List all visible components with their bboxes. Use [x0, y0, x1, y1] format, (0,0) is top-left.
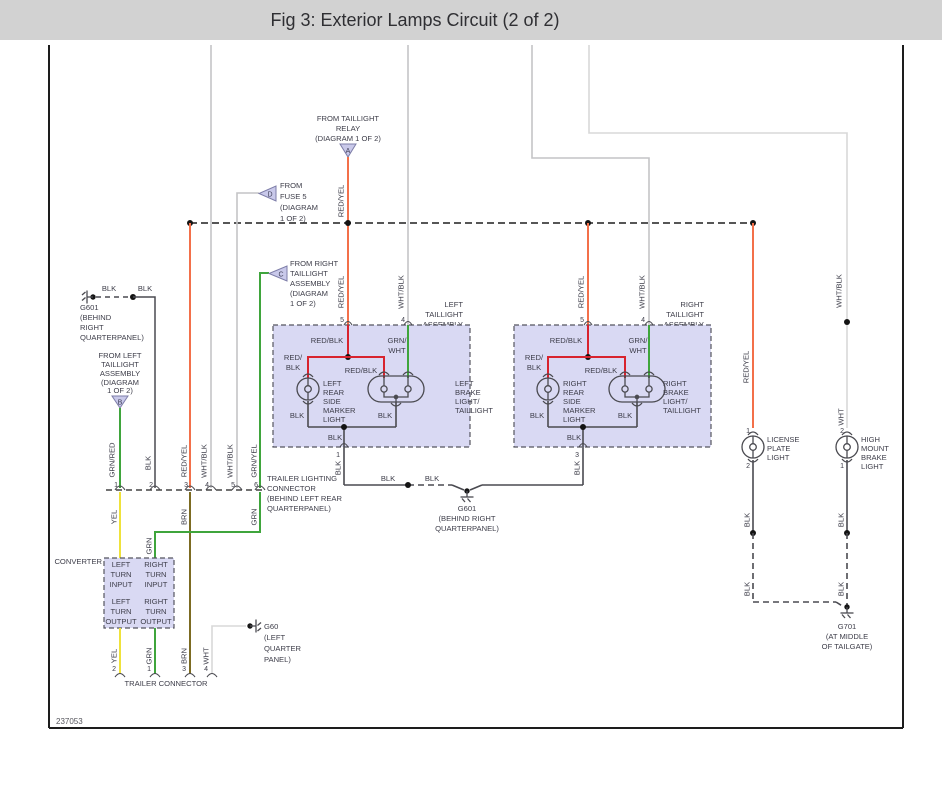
diagram-frame: 237053: [49, 45, 903, 728]
converter-name: CONVERTER: [54, 557, 102, 566]
svg-text:PLATE: PLATE: [767, 444, 791, 453]
ref-connector-a: FROM TAILLIGHT RELAY (DIAGRAM 1 OF 2) A: [315, 114, 381, 157]
svg-text:RED/: RED/: [525, 353, 544, 362]
svg-text:OUTPUT: OUTPUT: [105, 617, 137, 626]
svg-text:(DIAGRAM: (DIAGRAM: [280, 203, 318, 212]
svg-text:TURN: TURN: [145, 570, 166, 579]
svg-text:RED/BLK: RED/BLK: [345, 366, 378, 375]
svg-text:BLK: BLK: [334, 461, 343, 475]
svg-text:LEFT: LEFT: [112, 597, 131, 606]
svg-text:GRN: GRN: [145, 648, 154, 665]
wire-label: BLK: [102, 284, 116, 293]
svg-text:LEFT: LEFT: [112, 560, 131, 569]
svg-text:RELAY: RELAY: [336, 124, 360, 133]
svg-text:BRAKE: BRAKE: [663, 388, 689, 397]
wire-grn-yel: [260, 273, 269, 488]
svg-text:BLK: BLK: [290, 411, 304, 420]
svg-text:BLK: BLK: [530, 411, 544, 420]
svg-text:3: 3: [575, 452, 579, 459]
svg-text:FROM RIGHT: FROM RIGHT: [290, 259, 338, 268]
wire-label: RED/YEL: [337, 185, 346, 218]
svg-text:TAILLIGHT: TAILLIGHT: [455, 406, 493, 415]
wire-whtblk-to-right-assembly: [532, 45, 649, 325]
license-plate-light: RED/YEL 1 2 LICENSE PLATE LIGHT BLK BLK: [742, 351, 845, 607]
svg-text:5: 5: [340, 317, 344, 324]
svg-text:WHT/BLK: WHT/BLK: [200, 444, 209, 478]
svg-text:LIGHT: LIGHT: [861, 462, 884, 471]
svg-text:TURN: TURN: [110, 607, 131, 616]
svg-text:RIGHT: RIGHT: [563, 379, 587, 388]
svg-text:CONNECTOR: CONNECTOR: [267, 484, 316, 493]
svg-text:BLK: BLK: [527, 363, 541, 372]
svg-text:4: 4: [641, 317, 645, 324]
right-taillight-assembly: RED/YEL WHT/BLK RIGHT TAILLIGHT ASSEMBLY…: [514, 275, 711, 485]
svg-text:3: 3: [184, 482, 188, 489]
svg-text:BLK: BLK: [381, 474, 395, 483]
svg-text:BLK: BLK: [837, 582, 846, 596]
svg-text:TURN: TURN: [145, 607, 166, 616]
svg-text:LIGHT: LIGHT: [323, 415, 346, 424]
svg-text:BRAKE: BRAKE: [861, 453, 887, 462]
svg-text:GRN/: GRN/: [629, 336, 649, 345]
svg-text:WHT: WHT: [837, 408, 846, 426]
ground-run-g601: BLK BLK BLK BLK G601 (BEHIND RIGHT QUART…: [334, 461, 584, 533]
svg-text:BRN: BRN: [180, 648, 189, 664]
wire-label: BLK: [138, 284, 152, 293]
svg-text:OF TAILGATE): OF TAILGATE): [822, 642, 873, 651]
svg-text:INPUT: INPUT: [110, 580, 133, 589]
svg-text:1: 1: [336, 452, 340, 459]
ground-g701: G701 (AT MIDDLE OF TAILGATE): [822, 604, 873, 651]
svg-text:G60: G60: [264, 622, 278, 631]
svg-text:RED/BLK: RED/BLK: [550, 336, 583, 345]
svg-text:TAILLIGHT: TAILLIGHT: [425, 310, 463, 319]
svg-text:4: 4: [205, 482, 209, 489]
svg-text:2: 2: [112, 666, 116, 673]
high-mount-brake-light: WHT/BLK WHT 2 1 HIGH MOUNT BRAKE LIGHT B…: [835, 274, 890, 605]
svg-text:(DIAGRAM 1 OF 2): (DIAGRAM 1 OF 2): [315, 134, 381, 143]
svg-text:TAILLIGHT: TAILLIGHT: [666, 310, 704, 319]
svg-text:RIGHT: RIGHT: [663, 379, 687, 388]
svg-text:PANEL): PANEL): [264, 655, 291, 664]
svg-text:BLK: BLK: [837, 513, 846, 527]
svg-text:1 OF 2): 1 OF 2): [280, 214, 306, 223]
svg-text:LIGHT/: LIGHT/: [663, 397, 688, 406]
ground-icon: [461, 488, 474, 502]
svg-text:BLK: BLK: [618, 411, 632, 420]
converter-box: CONVERTER LEFT TURN INPUT RIGHT TURN INP…: [54, 557, 174, 628]
svg-text:GRN/RED: GRN/RED: [108, 442, 117, 478]
svg-text:TAILLIGHT: TAILLIGHT: [290, 269, 328, 278]
svg-text:B: B: [118, 400, 123, 407]
svg-text:1: 1: [840, 463, 844, 470]
svg-text:BLK: BLK: [743, 582, 752, 596]
svg-text:4: 4: [401, 317, 405, 324]
svg-text:MARKER: MARKER: [323, 406, 356, 415]
svg-text:RED/BLK: RED/BLK: [585, 366, 618, 375]
svg-text:BLK: BLK: [425, 474, 439, 483]
svg-text:BLK: BLK: [567, 433, 581, 442]
svg-text:G601: G601: [458, 504, 477, 513]
svg-text:HIGH: HIGH: [861, 435, 880, 444]
svg-text:WHT/BLK: WHT/BLK: [226, 444, 235, 478]
trailer-connector-bottom: YEL GRN BRN WHT 2 1 3 4 TRAILER CONNECTO…: [110, 626, 247, 688]
svg-text:MARKER: MARKER: [563, 406, 596, 415]
svg-text:WHT: WHT: [629, 346, 647, 355]
svg-text:WHT/BLK: WHT/BLK: [638, 275, 647, 309]
wire-from-fuse5: [237, 193, 259, 488]
svg-text:(BEHIND: (BEHIND: [80, 313, 112, 322]
svg-text:GRN/YEL: GRN/YEL: [250, 444, 259, 477]
svg-text:(LEFT: (LEFT: [264, 633, 285, 642]
svg-text:ASSEMBLY: ASSEMBLY: [290, 279, 330, 288]
trailer-lighting-connector: 1 2 3 4 5 6 GRN/RED BLK RED/YEL WHT/BLK …: [106, 442, 342, 513]
wire-grn: [155, 492, 260, 560]
svg-text:5: 5: [231, 482, 235, 489]
svg-text:SIDE: SIDE: [563, 397, 581, 406]
svg-text:D: D: [267, 192, 272, 199]
svg-text:YEL: YEL: [110, 510, 119, 524]
svg-text:BLK: BLK: [573, 461, 582, 475]
svg-text:(BEHIND LEFT REAR: (BEHIND LEFT REAR: [267, 494, 342, 503]
svg-text:TAILLIGHT: TAILLIGHT: [101, 360, 139, 369]
svg-text:2: 2: [149, 482, 153, 489]
svg-text:RED/YEL: RED/YEL: [577, 276, 586, 309]
svg-text:LIGHT: LIGHT: [563, 415, 586, 424]
svg-text:G601: G601: [80, 303, 99, 312]
trailer-connector-label: TRAILER CONNECTOR: [125, 679, 208, 688]
svg-text:6: 6: [254, 482, 258, 489]
svg-text:FUSE 5: FUSE 5: [280, 192, 307, 201]
svg-text:RIGHT: RIGHT: [144, 560, 168, 569]
svg-text:TURN: TURN: [110, 570, 131, 579]
svg-text:C: C: [278, 272, 283, 279]
svg-text:LEFT: LEFT: [444, 300, 463, 309]
svg-text:BLK: BLK: [286, 363, 300, 372]
svg-text:RED/YEL: RED/YEL: [742, 351, 751, 384]
assembly-box: [273, 325, 470, 447]
svg-text:YEL: YEL: [110, 649, 119, 663]
circuit-diagram: 237053 FROM TAILLIGHT RELAY (DIAGRAM 1 O…: [0, 0, 942, 748]
ground-icon: [841, 604, 854, 618]
svg-text:INPUT: INPUT: [145, 580, 168, 589]
svg-text:GRN: GRN: [145, 538, 154, 555]
wire-wht-to-g60: [212, 626, 246, 674]
svg-text:OUTPUT: OUTPUT: [140, 617, 172, 626]
svg-text:REAR: REAR: [323, 388, 345, 397]
svg-text:1: 1: [114, 482, 118, 489]
wiring-diagram-page: Fig 3: Exterior Lamps Circuit (2 of 2): [0, 0, 942, 788]
svg-text:WHT: WHT: [388, 346, 406, 355]
svg-text:RIGHT: RIGHT: [80, 323, 104, 332]
svg-text:WHT/BLK: WHT/BLK: [397, 275, 406, 309]
svg-text:1: 1: [147, 666, 151, 673]
svg-text:WHT/BLK: WHT/BLK: [835, 274, 844, 308]
svg-text:A: A: [346, 148, 351, 155]
svg-text:SIDE: SIDE: [323, 397, 341, 406]
svg-text:TRAILER LIGHTING: TRAILER LIGHTING: [267, 474, 337, 483]
svg-text:1 OF 2): 1 OF 2): [290, 299, 316, 308]
svg-text:5: 5: [580, 317, 584, 324]
license-bulb-icon: [742, 432, 764, 462]
svg-text:BLK: BLK: [144, 456, 153, 470]
svg-text:4: 4: [204, 666, 208, 673]
highmount-bulb-icon: [836, 432, 858, 462]
svg-text:ASSEMBLY: ASSEMBLY: [100, 369, 140, 378]
ref-connector-b: FROM LEFT TAILLIGHT ASSEMBLY (DIAGRAM 1 …: [98, 351, 141, 488]
svg-text:QUARTERPANEL): QUARTERPANEL): [80, 333, 144, 342]
figure-id: 237053: [56, 717, 83, 726]
svg-text:LIGHT/: LIGHT/: [455, 397, 480, 406]
svg-text:(DIAGRAM: (DIAGRAM: [290, 289, 328, 298]
svg-text:RED/BLK: RED/BLK: [311, 336, 344, 345]
svg-text:GRN/: GRN/: [388, 336, 408, 345]
svg-text:REAR: REAR: [563, 388, 585, 397]
svg-text:FROM: FROM: [280, 181, 302, 190]
svg-text:3: 3: [182, 666, 186, 673]
svg-text:BRN: BRN: [180, 509, 189, 525]
svg-text:FROM LEFT: FROM LEFT: [98, 351, 141, 360]
svg-text:(BEHIND RIGHT: (BEHIND RIGHT: [439, 514, 496, 523]
svg-text:TAILLIGHT: TAILLIGHT: [663, 406, 701, 415]
svg-text:1 OF 2): 1 OF 2): [107, 386, 133, 395]
svg-text:RED/YEL: RED/YEL: [180, 445, 189, 478]
svg-text:RIGHT: RIGHT: [680, 300, 704, 309]
svg-text:QUARTERPANEL): QUARTERPANEL): [435, 524, 499, 533]
svg-text:BLK: BLK: [328, 433, 342, 442]
svg-text:G701: G701: [838, 622, 857, 631]
ref-a-label: FROM TAILLIGHT: [317, 114, 380, 123]
svg-text:GRN: GRN: [250, 509, 259, 526]
svg-text:LICENSE: LICENSE: [767, 435, 800, 444]
svg-text:LEFT: LEFT: [455, 379, 474, 388]
svg-text:LEFT: LEFT: [323, 379, 342, 388]
svg-text:RED/YEL: RED/YEL: [337, 276, 346, 309]
svg-text:QUARTER: QUARTER: [264, 644, 302, 653]
svg-text:(AT MIDDLE: (AT MIDDLE: [826, 632, 868, 641]
svg-text:2: 2: [746, 463, 750, 470]
ground-icon: [82, 291, 96, 304]
svg-text:WHT: WHT: [202, 647, 211, 665]
ground-icon: [247, 620, 261, 633]
ground-g60: G60 (LEFT QUARTER PANEL): [247, 620, 301, 665]
svg-text:BLK: BLK: [743, 513, 752, 527]
svg-text:RIGHT: RIGHT: [144, 597, 168, 606]
svg-text:LIGHT: LIGHT: [767, 453, 790, 462]
svg-text:MOUNT: MOUNT: [861, 444, 889, 453]
svg-text:RED/: RED/: [284, 353, 303, 362]
svg-text:BLK: BLK: [378, 411, 392, 420]
svg-text:BRAKE: BRAKE: [455, 388, 481, 397]
svg-text:QUARTERPANEL): QUARTERPANEL): [267, 504, 331, 513]
